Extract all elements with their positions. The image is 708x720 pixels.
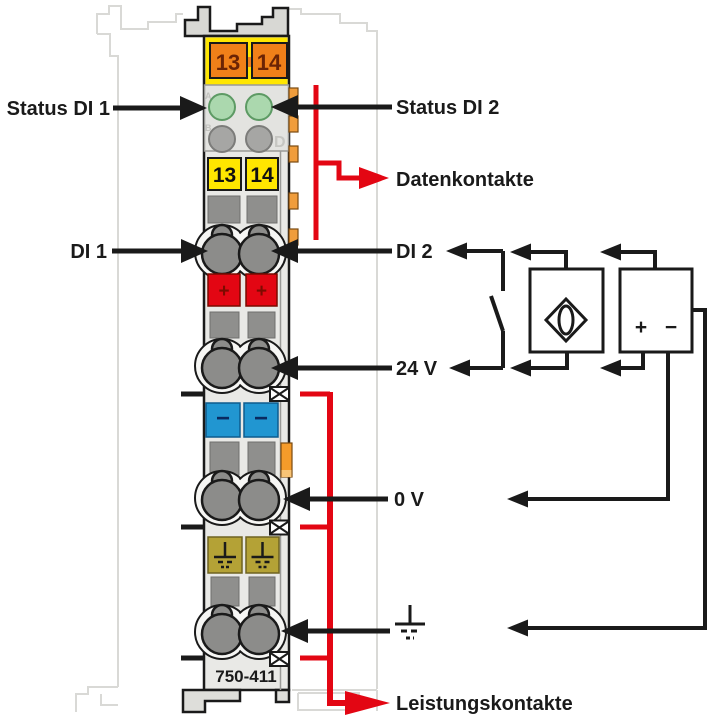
terminal-number-14: 14 — [250, 164, 274, 187]
switch-symbol — [491, 251, 503, 368]
power-contacts-line — [330, 392, 346, 703]
label-datenkontakte: Datenkontakte — [396, 169, 534, 191]
silhouette-left-edge — [97, 34, 118, 687]
minus-sign-left: − — [216, 405, 230, 432]
earth-return-wire — [526, 310, 705, 628]
part-number: 750-411 — [215, 667, 276, 686]
24v-circuit-arrowhead-3 — [600, 360, 621, 377]
label-leistungskontakte: Leistungskontakte — [396, 693, 573, 715]
silhouette-top-left — [97, 6, 183, 34]
wiring-diagram-page: 13 14 A B D 13 14 + + − − — [0, 0, 708, 720]
label-di1: DI 1 — [70, 241, 107, 263]
clamp-row-earth — [195, 605, 286, 659]
status-led-di1 — [209, 94, 235, 120]
status-led-di2 — [246, 94, 272, 120]
earth-return-arrowhead — [507, 620, 528, 637]
clamp-row-0v — [195, 471, 286, 525]
led-off-right — [246, 126, 272, 152]
io-module: 13 14 A B D 13 14 + + − − — [181, 7, 298, 712]
sensor-output-arrowhead — [510, 244, 531, 261]
label-di2: DI 2 — [396, 241, 433, 263]
di2-circuit-arrowhead — [446, 243, 467, 260]
plus-sign-left: + — [218, 281, 229, 302]
24v-circuit-wire-2 — [529, 352, 567, 368]
external-circuit: + − — [446, 243, 705, 637]
sensor-output-wire — [531, 252, 566, 269]
terminal-number-14-top: 14 — [257, 50, 282, 75]
silhouette-bottom-left — [76, 687, 118, 712]
pushbutton — [208, 196, 240, 223]
bottom-foot-left — [183, 690, 240, 712]
jumper-contact-symbol — [270, 521, 289, 535]
wago-750-411-wiring-diagram: 13 14 A B D 13 14 + + − − — [0, 0, 708, 720]
label-24v: 24 V — [396, 358, 438, 380]
bottom-foot-right — [276, 690, 289, 702]
pushbutton — [248, 312, 275, 338]
plus-sign-right: + — [256, 281, 267, 302]
0v-return-wire — [526, 352, 668, 499]
power-supply-symbol: + − — [620, 269, 692, 352]
psu-minus: − — [665, 316, 677, 339]
psu-plus-arrowhead — [600, 244, 621, 261]
0v-return-arrowhead — [507, 491, 528, 508]
psu-plus: + — [635, 316, 647, 339]
led-off-left — [209, 126, 235, 152]
minus-sign-right: − — [254, 405, 268, 432]
pushbutton — [210, 312, 239, 338]
jumper-contact-symbol — [270, 652, 289, 666]
earth-label-symbol — [395, 605, 425, 638]
data-contacts-arrow-line — [316, 163, 360, 178]
label-0v: 0 V — [394, 489, 425, 511]
24v-circuit-arrowhead-2 — [510, 360, 531, 377]
sensor-symbol — [530, 269, 603, 352]
pushbutton — [247, 196, 277, 223]
power-jumper-contact-tip — [282, 470, 292, 477]
data-contacts-arrowhead — [359, 167, 389, 189]
label-status-di1: Status DI 1 — [7, 98, 110, 120]
jumper-contact-symbol — [270, 387, 289, 401]
terminal-number-13-top: 13 — [216, 50, 240, 75]
clamp-row-di — [195, 225, 286, 279]
top-latch — [185, 7, 288, 36]
power-contacts-arrowhead — [345, 691, 390, 715]
24v-circuit-arrowhead-1 — [449, 360, 470, 377]
pushbutton — [211, 577, 239, 606]
clamp-row-24v — [195, 339, 286, 393]
label-status-di2: Status DI 2 — [396, 97, 499, 119]
terminal-number-13: 13 — [213, 164, 236, 187]
led-letter-d: D — [274, 134, 286, 151]
pushbutton — [249, 577, 275, 606]
24v-circuit-wire-3 — [619, 352, 643, 368]
psu-plus-wire — [620, 252, 655, 269]
